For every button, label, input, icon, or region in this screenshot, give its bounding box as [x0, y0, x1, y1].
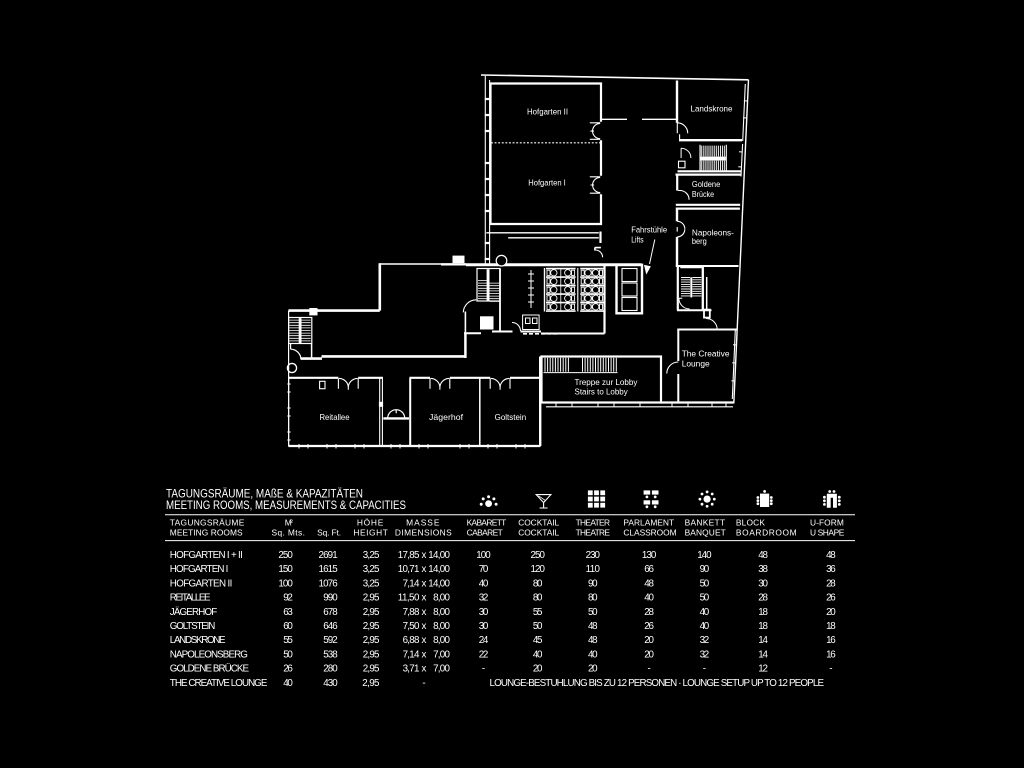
svg-text:8,00: 8,00 [433, 635, 450, 646]
svg-text:28: 28 [826, 578, 836, 589]
svg-text:GOLDENE BRÜCKE: GOLDENE BRÜCKE [170, 664, 250, 675]
svg-text:x: x [422, 621, 427, 632]
svg-text:Sq. Mts.: Sq. Mts. [272, 527, 305, 537]
svg-text:592: 592 [323, 635, 337, 646]
svg-text:Brücke: Brücke [692, 189, 714, 199]
svg-text:678: 678 [323, 607, 338, 618]
svg-text:Landskrone: Landskrone [691, 103, 733, 113]
svg-text:x: x [422, 635, 427, 646]
svg-text:20: 20 [533, 664, 543, 675]
svg-text:10,71: 10,71 [398, 564, 420, 575]
svg-text:HOFGARTEN I: HOFGARTEN I [170, 564, 229, 575]
svg-text:Goldene: Goldene [692, 179, 721, 189]
svg-text:Fahrstühle: Fahrstühle [631, 225, 667, 235]
svg-text:26: 26 [826, 593, 836, 604]
svg-text:12: 12 [758, 664, 768, 675]
svg-text:The Creative: The Creative [682, 348, 730, 358]
svg-text:2,95: 2,95 [362, 678, 380, 689]
svg-text:11,50: 11,50 [398, 593, 420, 604]
svg-text:KABARETT: KABARETT [467, 518, 507, 528]
svg-text:BANKETT: BANKETT [685, 518, 726, 528]
svg-text:18: 18 [758, 607, 768, 618]
svg-text:Jägerhof: Jägerhof [429, 412, 464, 422]
svg-text:538: 538 [323, 649, 338, 660]
svg-text:-: - [482, 664, 485, 675]
svg-text:HÖHE: HÖHE [357, 518, 384, 528]
svg-text:THE CREATIVE LOUNGE: THE CREATIVE LOUNGE [170, 678, 268, 689]
svg-text:14,00: 14,00 [428, 578, 450, 589]
svg-text:Lounge: Lounge [682, 358, 710, 368]
svg-text:3,25: 3,25 [363, 564, 380, 575]
svg-text:32: 32 [479, 593, 489, 604]
svg-text:TAGUNGSRÄUME: TAGUNGSRÄUME [170, 518, 245, 528]
svg-text:22: 22 [479, 649, 489, 660]
svg-text:7,14: 7,14 [403, 578, 420, 589]
svg-text:6,88: 6,88 [403, 635, 420, 646]
svg-text:92: 92 [283, 593, 293, 604]
svg-text:x: x [422, 664, 427, 675]
svg-text:Reitallee: Reitallee [319, 412, 349, 422]
svg-text:Hofgarten I: Hofgarten I [528, 177, 566, 187]
svg-text:x: x [422, 564, 427, 575]
svg-text:28: 28 [758, 593, 768, 604]
svg-text:55: 55 [283, 635, 293, 646]
svg-text:7,00: 7,00 [433, 649, 450, 660]
svg-text:20: 20 [826, 607, 836, 618]
svg-text:x: x [422, 649, 427, 660]
svg-text:7,88: 7,88 [403, 607, 420, 618]
svg-text:40: 40 [588, 649, 598, 660]
svg-text:55: 55 [533, 607, 543, 618]
svg-text:MEETING ROOMS: MEETING ROOMS [170, 527, 243, 537]
svg-text:90: 90 [700, 564, 710, 575]
svg-text:14: 14 [758, 635, 768, 646]
svg-text:50: 50 [700, 593, 710, 604]
svg-text:230: 230 [586, 550, 601, 561]
svg-text:48: 48 [644, 578, 654, 589]
svg-text:-: - [422, 678, 425, 689]
svg-text:x: x [422, 593, 427, 604]
svg-text:48: 48 [758, 550, 768, 561]
svg-text:2,95: 2,95 [363, 664, 380, 675]
svg-text:40: 40 [533, 649, 543, 660]
svg-text:80: 80 [533, 593, 543, 604]
svg-text:32: 32 [700, 649, 710, 660]
svg-text:3,25: 3,25 [363, 550, 380, 561]
svg-text:150: 150 [278, 564, 293, 575]
svg-text:U SHAPE: U SHAPE [810, 527, 845, 537]
svg-text:Stairs to Lobby: Stairs to Lobby [575, 387, 629, 397]
svg-text:16: 16 [826, 649, 836, 660]
svg-text:130: 130 [642, 550, 657, 561]
svg-text:x: x [422, 578, 427, 589]
svg-text:16: 16 [826, 635, 836, 646]
svg-text:JÄGERHOF: JÄGERHOF [170, 607, 217, 618]
svg-text:20: 20 [588, 664, 598, 675]
svg-text:36: 36 [826, 564, 836, 575]
svg-text:40: 40 [644, 593, 654, 604]
svg-text:90: 90 [588, 578, 598, 589]
svg-text:40: 40 [283, 678, 293, 689]
svg-text:26: 26 [644, 621, 654, 632]
svg-text:110: 110 [586, 564, 601, 575]
svg-text:LOUNGE-BESTUHLUNG BIS ZU 12 PE: LOUNGE-BESTUHLUNG BIS ZU 12 PERSONEN · L… [490, 678, 825, 689]
svg-text:40: 40 [700, 621, 710, 632]
svg-text:GOLTSTEIN: GOLTSTEIN [170, 621, 216, 632]
svg-text:3,25: 3,25 [363, 578, 380, 589]
svg-text:14,00: 14,00 [428, 564, 450, 575]
svg-text:30: 30 [479, 621, 489, 632]
svg-text:DIMENSIONS: DIMENSIONS [395, 527, 452, 537]
svg-text:HOFGARTEN II: HOFGARTEN II [170, 578, 233, 589]
svg-text:48: 48 [826, 550, 836, 561]
svg-text:BANQUET: BANQUET [685, 527, 726, 537]
svg-text:-: - [829, 664, 832, 675]
svg-text:430: 430 [323, 678, 338, 689]
svg-text:18: 18 [826, 621, 836, 632]
svg-text:2,95: 2,95 [363, 593, 380, 604]
svg-text:-: - [703, 664, 706, 675]
svg-text:250: 250 [531, 550, 546, 561]
svg-text:30: 30 [479, 607, 489, 618]
svg-text:50: 50 [283, 649, 293, 660]
svg-text:Treppe zur Lobby: Treppe zur Lobby [575, 377, 639, 387]
svg-text:BOARDROOM: BOARDROOM [736, 527, 797, 537]
svg-text:32: 32 [700, 635, 710, 646]
svg-text:U-FORM: U-FORM [810, 518, 844, 528]
svg-text:7,50: 7,50 [403, 621, 420, 632]
svg-text:20: 20 [644, 649, 654, 660]
svg-text:100: 100 [278, 578, 293, 589]
svg-text:80: 80 [588, 593, 598, 604]
svg-text:48: 48 [588, 635, 598, 646]
svg-text:280: 280 [323, 664, 338, 675]
svg-text:Sq. Ft.: Sq. Ft. [317, 527, 341, 537]
svg-text:63: 63 [283, 607, 293, 618]
svg-text:COCKTAIL: COCKTAIL [518, 518, 559, 528]
svg-text:60: 60 [283, 621, 293, 632]
svg-text:24: 24 [479, 635, 489, 646]
svg-text:50: 50 [533, 621, 543, 632]
svg-text:50: 50 [700, 578, 710, 589]
svg-text:100: 100 [476, 550, 491, 561]
svg-text:2,95: 2,95 [363, 607, 380, 618]
svg-text:2691: 2691 [319, 550, 338, 561]
svg-text:PARLAMENT: PARLAMENT [623, 518, 674, 528]
svg-text:646: 646 [323, 621, 338, 632]
svg-text:14: 14 [758, 649, 768, 660]
svg-text:120: 120 [531, 564, 546, 575]
svg-text:38: 38 [758, 564, 768, 575]
svg-text:80: 80 [533, 578, 543, 589]
svg-text:26: 26 [283, 664, 293, 675]
svg-text:HOFGARTEN I + II: HOFGARTEN I + II [170, 550, 243, 561]
svg-text:THEATER: THEATER [576, 518, 610, 528]
svg-text:48: 48 [588, 621, 598, 632]
svg-text:14,00: 14,00 [428, 550, 450, 561]
svg-text:40: 40 [700, 607, 710, 618]
svg-text:40: 40 [479, 578, 489, 589]
svg-text:M²: M² [285, 518, 293, 528]
svg-text:x: x [422, 550, 427, 561]
svg-text:3,71: 3,71 [403, 664, 420, 675]
svg-text:30: 30 [758, 578, 768, 589]
svg-text:2,95: 2,95 [363, 649, 380, 660]
svg-text:CLASSROOM: CLASSROOM [623, 527, 676, 537]
svg-text:HEIGHT: HEIGHT [353, 527, 388, 537]
svg-text:THEATRE: THEATRE [576, 527, 611, 537]
svg-text:7,14: 7,14 [403, 649, 420, 660]
svg-text:8,00: 8,00 [433, 621, 450, 632]
svg-text:1076: 1076 [319, 578, 339, 589]
svg-text:-: - [647, 664, 650, 675]
svg-text:COCKTAIL: COCKTAIL [518, 527, 559, 537]
svg-text:18: 18 [758, 621, 768, 632]
svg-text:45: 45 [533, 635, 543, 646]
svg-text:28: 28 [644, 607, 654, 618]
svg-text:NAPOLEONSBERG: NAPOLEONSBERG [170, 649, 248, 660]
svg-text:70: 70 [479, 564, 489, 575]
svg-text:7,00: 7,00 [433, 664, 450, 675]
svg-text:17,85: 17,85 [398, 550, 420, 561]
svg-text:LANDSKRONE: LANDSKRONE [170, 635, 226, 646]
svg-text:8,00: 8,00 [433, 607, 450, 618]
svg-text:140: 140 [697, 550, 712, 561]
svg-text:MASSE: MASSE [406, 518, 440, 528]
svg-text:REITALLEE: REITALLEE [170, 593, 211, 604]
svg-text:CABARET: CABARET [467, 527, 503, 537]
svg-text:Hofgarten II: Hofgarten II [527, 106, 568, 116]
svg-text:BLOCK: BLOCK [736, 518, 766, 528]
svg-text:2,95: 2,95 [363, 621, 380, 632]
svg-text:50: 50 [588, 607, 598, 618]
svg-text:20: 20 [644, 635, 654, 646]
svg-text:66: 66 [644, 564, 654, 575]
svg-text:berg: berg [692, 236, 707, 246]
svg-text:250: 250 [278, 550, 293, 561]
svg-text:8,00: 8,00 [433, 593, 450, 604]
svg-text:2,95: 2,95 [363, 635, 380, 646]
svg-text:x: x [422, 607, 427, 618]
svg-text:1615: 1615 [319, 564, 339, 575]
svg-text:990: 990 [323, 593, 338, 604]
svg-text:Lifts: Lifts [631, 234, 643, 244]
svg-text:Goltstein: Goltstein [495, 412, 527, 422]
svg-text:MEETING ROOMS, MEASUREMENTS &: MEETING ROOMS, MEASUREMENTS & CAPACITIES [166, 498, 406, 512]
